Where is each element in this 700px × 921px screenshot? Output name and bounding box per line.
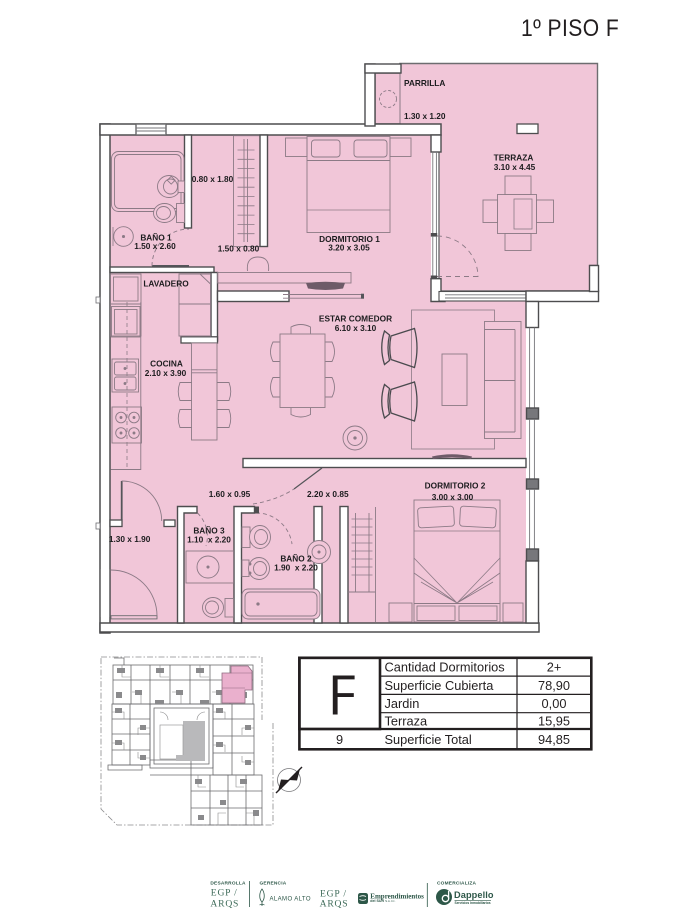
- svg-text:1.50 x 0.80: 1.50 x 0.80: [218, 244, 260, 254]
- svg-text:3.10 x 4.45: 3.10 x 4.45: [494, 162, 536, 172]
- svg-text:1.90 x 2.20: 1.90 x 2.20: [274, 563, 318, 573]
- svg-text:Jardin: Jardin: [385, 696, 420, 711]
- svg-text:DORMITORIO 2: DORMITORIO 2: [425, 481, 486, 491]
- svg-text:Terraza: Terraza: [385, 714, 429, 729]
- svg-text:Servicios Inmobiliarios: Servicios Inmobiliarios: [455, 901, 491, 905]
- svg-text:1.10 x 2.20: 1.10 x 2.20: [187, 535, 231, 545]
- svg-text:15,95: 15,95: [538, 714, 570, 729]
- svg-text:1.50 x 2.60: 1.50 x 2.60: [134, 241, 176, 251]
- svg-text:0.80 x 1.80: 0.80 x 1.80: [192, 174, 234, 184]
- svg-text:2.20 x 0.85: 2.20 x 0.85: [307, 489, 349, 499]
- svg-text:2.10 x 3.90: 2.10 x 3.90: [145, 368, 187, 378]
- svg-text:94,85: 94,85: [538, 732, 570, 747]
- svg-text:78,90: 78,90: [538, 678, 570, 693]
- svg-text:2+: 2+: [547, 660, 562, 675]
- svg-text:3.20 x 3.05: 3.20 x 3.05: [328, 243, 370, 253]
- svg-text:ALAMO ALTO: ALAMO ALTO: [270, 897, 311, 903]
- svg-text:1.30 x 1.90: 1.30 x 1.90: [109, 534, 151, 544]
- svg-text:Cantidad Dormitorios: Cantidad Dormitorios: [385, 660, 505, 675]
- svg-text:ARQS: ARQS: [320, 898, 349, 909]
- svg-text:COCINA: COCINA: [150, 359, 183, 369]
- svg-text:1.60 x 0.95: 1.60 x 0.95: [209, 489, 251, 499]
- svg-text:GERENCIA: GERENCIA: [260, 881, 287, 887]
- svg-text:1º PISO F: 1º PISO F: [521, 13, 619, 41]
- svg-text:3.00 x 3.00: 3.00 x 3.00: [432, 492, 474, 502]
- svg-text:DESARROLLA: DESARROLLA: [210, 881, 246, 887]
- svg-text:Dappello: Dappello: [454, 890, 494, 900]
- svg-text:Superficie Cubierta: Superficie Cubierta: [385, 678, 495, 693]
- svg-text:COMERCIALIZA: COMERCIALIZA: [437, 880, 477, 886]
- svg-text:1.30 x 1.20: 1.30 x 1.20: [404, 111, 446, 121]
- svg-text:Superficie Total: Superficie Total: [385, 732, 472, 747]
- svg-text:TERRAZA: TERRAZA: [494, 153, 534, 163]
- svg-text:ESTAR COMEDOR: ESTAR COMEDOR: [319, 313, 392, 323]
- svg-text:9: 9: [336, 732, 343, 747]
- svg-text:ARQS: ARQS: [210, 898, 239, 909]
- svg-text:6.10 x 3.10: 6.10 x 3.10: [335, 323, 377, 333]
- svg-text:EGP /: EGP /: [211, 888, 238, 899]
- svg-text:0,00: 0,00: [542, 696, 567, 711]
- svg-text:LAVADERO: LAVADERO: [143, 279, 189, 289]
- svg-text:PARRILLA: PARRILLA: [404, 78, 445, 88]
- svg-text:del SUR S.A.I.C.: del SUR S.A.I.C.: [370, 899, 395, 903]
